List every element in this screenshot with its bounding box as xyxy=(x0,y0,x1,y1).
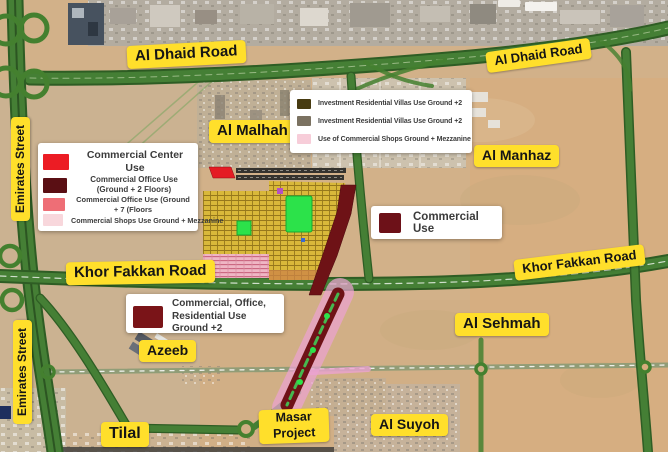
map-label-al-sehmah: Al Sehmah xyxy=(455,313,549,336)
mixed-use-swatch xyxy=(133,306,163,328)
legend-commercial-use: Commercial Use xyxy=(371,206,502,239)
legend-item-label: Commercial Use xyxy=(413,211,494,235)
legend-item-label: Investment Residential Villas Use Ground… xyxy=(318,100,462,107)
legend-item-label: Investment Residential Villas Use Ground… xyxy=(318,118,462,125)
masar-project-line2: Project xyxy=(267,425,322,443)
villas-ground2-swatch-taupe xyxy=(297,116,311,126)
map-label-al-malhah: Al Malhah xyxy=(209,120,296,143)
map-label-al-suyoh: Al Suyoh xyxy=(371,414,448,436)
legend-residential-villas: Investment Residential Villas Use Ground… xyxy=(290,90,472,153)
legend-mixed-use: Commercial, Office, Residential Use Grou… xyxy=(126,294,284,333)
legend-item-label: Commercial Center Use xyxy=(77,149,193,175)
commercial-office-g7-swatch xyxy=(43,198,65,211)
masterplan-map: Al Dhaid Road Al Dhaid Road Al Malhah Al… xyxy=(0,0,668,452)
legend-item: Investment Residential Villas Use Ground… xyxy=(297,99,465,109)
map-label-khor-fakkan-road-left: Khor Fakkan Road xyxy=(66,260,215,286)
park xyxy=(286,196,312,232)
arabic-map-chip xyxy=(525,2,557,11)
villas-ground2-swatch-dark xyxy=(297,99,311,109)
legend-item-label: Use of Commercial Shops Ground + Mezzani… xyxy=(318,136,471,143)
legend-item-label: Commercial Office Use (Ground + 7 (Floor… xyxy=(73,195,193,214)
legend-item: Investment Residential Villas Use Ground… xyxy=(297,116,465,126)
commercial-center-block xyxy=(209,167,235,178)
legend-item: Commercial, Office, Residential Use Grou… xyxy=(133,298,277,336)
map-label-al-manhaz: Al Manhaz xyxy=(474,145,559,167)
legend-item: Commercial Office Use (Ground + 2 Floors… xyxy=(43,175,193,195)
roundabout xyxy=(476,364,486,374)
commercial-office-g2-swatch xyxy=(43,178,67,193)
legend-item: Commercial Use xyxy=(379,211,494,235)
arabic-map-chip xyxy=(498,0,520,7)
map-label-emirates-street-top: Emirates Street xyxy=(11,117,30,221)
legend-item: Commercial Center Use xyxy=(43,149,193,175)
legend-commercial-uses: Commercial Center Use Commercial Office … xyxy=(38,143,198,231)
map-label-masar-project: Masar Project xyxy=(258,408,329,445)
legend-item: Use of Commercial Shops Ground + Mezzani… xyxy=(297,134,465,144)
map-label-emirates-street-bottom: Emirates Street xyxy=(13,320,32,424)
edge-label-chip xyxy=(0,406,11,419)
legend-item: Commercial Office Use (Ground + 7 (Floor… xyxy=(43,195,193,214)
facility-plot xyxy=(277,188,283,194)
commercial-use-swatch xyxy=(379,213,401,233)
shops-mezzanine-swatch xyxy=(297,134,311,144)
map-label-tilal: Tilal xyxy=(101,422,149,447)
map-label-azeeb: Azeeb xyxy=(139,340,196,362)
commercial-shops-swatch xyxy=(43,214,63,226)
commercial-center-swatch xyxy=(43,154,69,170)
legend-item-label: Commercial, Office, Residential Use Grou… xyxy=(172,298,277,336)
park xyxy=(237,221,251,235)
legend-item-label: Commercial Shops Use Ground + Mezzanine xyxy=(71,216,223,225)
legend-item: Commercial Shops Use Ground + Mezzanine xyxy=(43,214,193,226)
legend-item-label: Commercial Office Use (Ground + 2 Floors… xyxy=(75,175,193,195)
roundabout xyxy=(239,422,253,436)
